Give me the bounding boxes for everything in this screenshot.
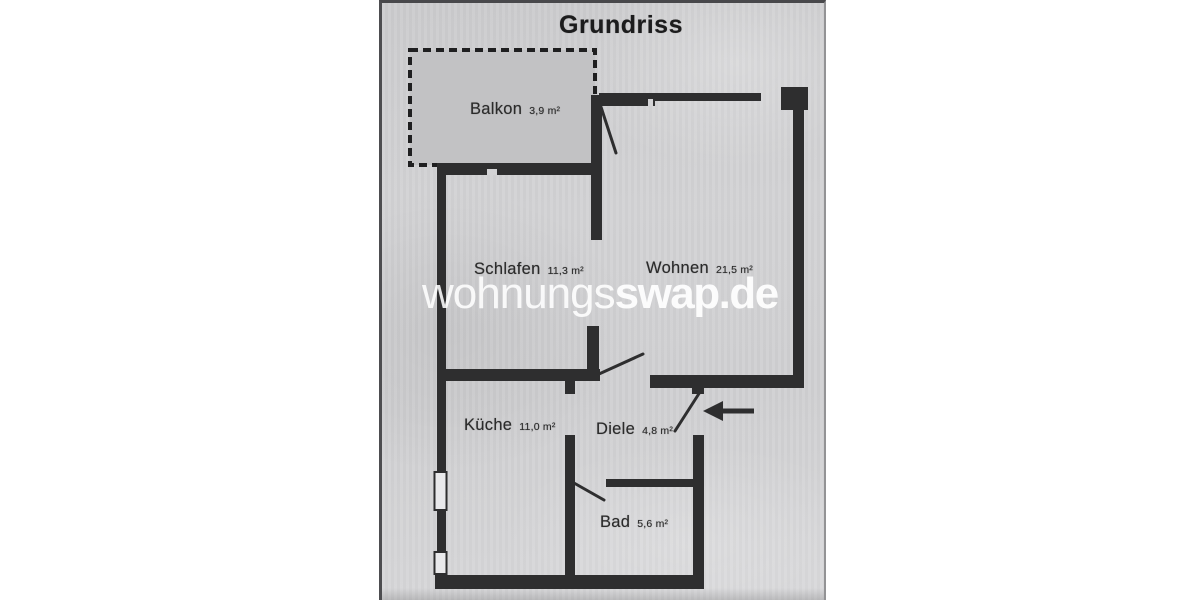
wall-wohnen-top-window: [655, 93, 761, 101]
watermark: wohnungsswap.de: [422, 272, 778, 316]
scan-background: Grundriss: [0, 0, 1200, 600]
watermark-bold-part: swap.de: [615, 269, 778, 318]
room-area-kueche: 11,0 m²: [519, 421, 555, 433]
wall-schlafen-top: [439, 163, 595, 175]
window-kueche-upper: [435, 472, 447, 510]
room-label-kueche: Küche 11,0 m²: [464, 416, 556, 435]
wall-diele-right: [693, 435, 704, 587]
room-label-diele: Diele 4,8 m²: [596, 420, 673, 439]
wall-kueche-stub: [565, 381, 575, 394]
room-label-bad: Bad 5,6 m²: [600, 513, 668, 532]
window-kueche-lower: [435, 552, 447, 574]
room-name-bad: Bad: [600, 513, 630, 532]
room-area-diele: 4,8 m²: [642, 425, 673, 437]
room-label-balkon: Balkon 3,9 m²: [470, 100, 560, 119]
entrance-arrow-icon: [703, 401, 723, 421]
room-area-balkon: 3,9 m²: [529, 105, 560, 117]
door-swing-bad: [574, 483, 604, 500]
wall-kueche-bad: [565, 435, 575, 587]
wall-schlafen-wohnen-upper: [591, 95, 602, 240]
door-swing-wohnen-diele: [599, 354, 643, 374]
wall-wohnen-top-left: [599, 93, 655, 106]
door-swing-balcony: [601, 107, 616, 153]
watermark-light-part: wohnungs: [422, 269, 615, 318]
door-swing-entrance: [675, 392, 700, 431]
wall-diele-bad: [606, 479, 695, 487]
wall-left-mid: [437, 510, 446, 552]
wall-wohnen-bottom: [650, 375, 802, 388]
room-name-kueche: Küche: [464, 416, 512, 435]
door-tick-schlafen: [487, 169, 497, 175]
wall-schlafen-wohnen-lower: [587, 326, 599, 381]
page-title: Grundriss: [559, 11, 683, 40]
wall-wohnen-right: [793, 87, 804, 388]
room-name-balkon: Balkon: [470, 100, 522, 119]
room-area-bad: 5,6 m²: [637, 518, 668, 530]
wall-bottom: [435, 575, 704, 589]
door-tick-balcony: [648, 99, 653, 106]
wall-entrance-stub: [692, 375, 704, 394]
wall-schlafen-bottom: [439, 369, 600, 381]
room-name-diele: Diele: [596, 420, 635, 439]
floorplan-paper: Grundriss: [379, 0, 826, 600]
